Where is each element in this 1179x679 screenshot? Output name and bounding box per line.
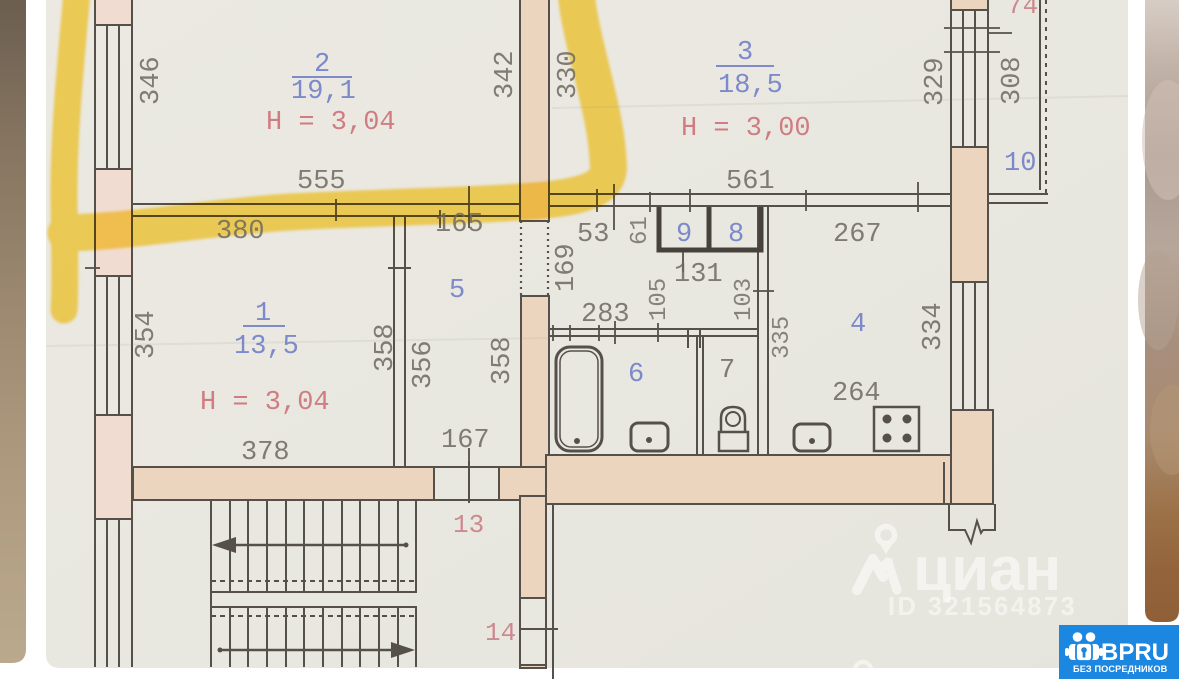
svg-text:1: 1 [255,299,271,329]
svg-text:358: 358 [371,323,401,372]
svg-text:555: 555 [297,167,346,197]
svg-text:Н = 3,00: Н = 3,00 [681,114,811,144]
svg-text:18,5: 18,5 [718,71,783,101]
svg-text:354: 354 [132,310,162,359]
svg-text:264: 264 [832,379,881,409]
svg-text:346: 346 [137,56,167,105]
svg-text:14: 14 [485,618,516,648]
svg-text:19,1: 19,1 [291,77,356,107]
svg-text:4: 4 [850,310,866,340]
svg-text:ID 321564873: ID 321564873 [888,593,1077,621]
svg-text:103: 103 [731,278,758,321]
svg-text:Н = 3,04: Н = 3,04 [200,388,330,418]
svg-text:561: 561 [726,167,775,197]
svg-text:Н = 3,04: Н = 3,04 [266,108,396,138]
svg-text:169: 169 [552,243,582,292]
svg-text:9: 9 [676,220,692,250]
svg-text:335: 335 [769,316,796,359]
svg-text:358: 358 [488,336,518,385]
svg-text:330: 330 [554,50,584,99]
svg-text:13: 13 [453,510,484,540]
svg-text:BPRU: BPRU [1101,639,1169,666]
svg-text:167: 167 [441,426,490,456]
svg-text:2: 2 [314,50,330,80]
svg-text:283: 283 [581,300,630,330]
svg-text:5: 5 [449,276,465,306]
svg-text:380: 380 [216,217,265,247]
svg-text:165: 165 [435,210,484,240]
svg-text:378: 378 [241,438,290,468]
svg-text:356: 356 [409,340,439,389]
svg-text:13,5: 13,5 [234,332,299,362]
svg-text:105: 105 [646,278,673,321]
svg-text:БЕЗ ПОСРЕДНИКОВ: БЕЗ ПОСРЕДНИКОВ [1073,664,1168,674]
svg-text:6: 6 [628,360,644,390]
svg-text:3: 3 [737,38,753,68]
svg-text:131: 131 [674,260,723,290]
svg-text:10: 10 [1004,149,1036,179]
svg-text:7: 7 [719,356,735,386]
svg-text:329: 329 [921,57,951,106]
svg-text:8: 8 [728,220,744,250]
svg-text:74: 74 [1007,0,1038,21]
svg-text:267: 267 [833,220,882,250]
svg-text:61: 61 [627,216,654,245]
svg-text:334: 334 [919,302,949,351]
svg-text:342: 342 [491,50,521,99]
